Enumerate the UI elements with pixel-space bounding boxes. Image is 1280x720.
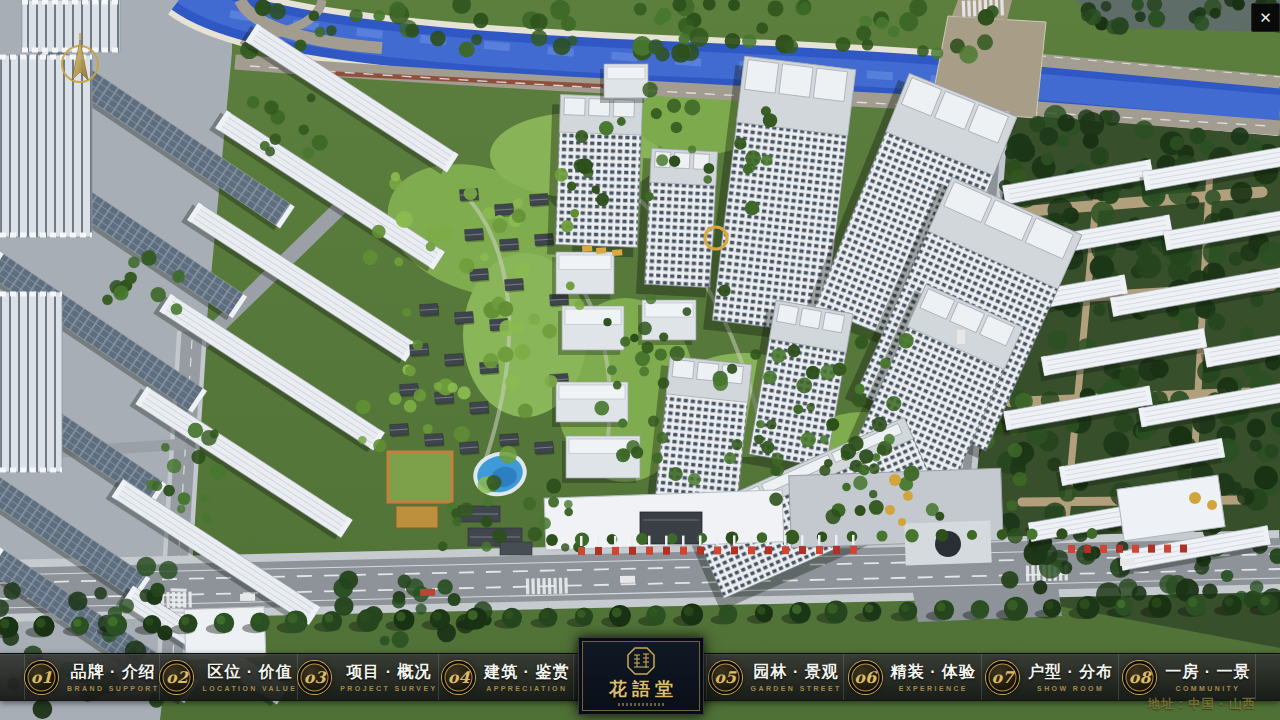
menu-title: 品牌 · 介绍 bbox=[71, 662, 156, 683]
close-icon: ✕ bbox=[1259, 10, 1272, 25]
menu-title: 精装 · 体验 bbox=[891, 662, 976, 683]
menu-subtitle: APPRECIATION bbox=[486, 685, 567, 692]
menu-subtitle: GARDEN STREET bbox=[751, 685, 842, 692]
menu-number-badge: o8 bbox=[1123, 661, 1156, 694]
close-button[interactable]: ✕ bbox=[1251, 3, 1280, 32]
menu-title: 一房 · 一景 bbox=[1165, 662, 1250, 683]
menu-subtitle: SHOW ROOM bbox=[1037, 685, 1104, 692]
menu-subtitle: EXPERIENCE bbox=[899, 685, 968, 692]
compass-icon bbox=[56, 32, 104, 92]
project-logo-panel[interactable]: 花語堂 bbox=[578, 637, 704, 715]
menu-title: 建筑 · 鉴赏 bbox=[484, 662, 569, 683]
menu-item-floorplan-distribution[interactable]: o7 户型 · 分布 SHOW ROOM bbox=[981, 654, 1118, 700]
masterplan-3d-view[interactable] bbox=[0, 0, 1280, 720]
hua-yu-tang-seal-icon bbox=[626, 646, 656, 676]
project-address: 地址：中国 · 山西 bbox=[1147, 696, 1256, 713]
menu-number-badge: o3 bbox=[298, 661, 331, 694]
menu-number-badge: o4 bbox=[442, 661, 475, 694]
menu-number-badge: o2 bbox=[160, 661, 193, 694]
menu-item-brand-intro[interactable]: o1 品牌 · 介绍 BRAND SUPPORT bbox=[24, 654, 159, 700]
menu-item-project-overview[interactable]: o3 项目 · 概况 PROJECT SURVEY bbox=[297, 654, 437, 700]
orange-wall-building bbox=[388, 452, 452, 502]
menu-item-garden-landscape[interactable]: o5 园林 · 景观 GARDEN STREET bbox=[706, 654, 843, 700]
menu-title: 园林 · 景观 bbox=[754, 662, 839, 683]
menu-number-badge: o7 bbox=[986, 661, 1019, 694]
menu-title: 项目 · 概况 bbox=[346, 662, 431, 683]
menu-subtitle: COMMUNITY bbox=[1175, 685, 1240, 692]
presentation-window: ✕ o1 品牌 · 介绍 BRAND SUPPORT o2 区位 · 价值 LO… bbox=[0, 0, 1280, 720]
menu-item-location-value[interactable]: o2 区位 · 价值 LOCATION VALUE bbox=[159, 654, 297, 700]
menu-number-badge: o6 bbox=[849, 661, 882, 694]
menu-subtitle: PROJECT SURVEY bbox=[340, 685, 437, 692]
menu-title: 户型 · 分布 bbox=[1028, 662, 1113, 683]
logo-tagline-rule bbox=[618, 703, 664, 706]
menu-number-badge: o1 bbox=[25, 661, 58, 694]
menu-number-badge: o5 bbox=[709, 661, 742, 694]
menu-title: 区位 · 价值 bbox=[207, 662, 292, 683]
project-logo-text: 花語堂 bbox=[604, 677, 678, 701]
menu-item-one-room-one-view[interactable]: o8 一房 · 一景 COMMUNITY bbox=[1118, 654, 1256, 700]
menu-subtitle: BRAND SUPPORT bbox=[67, 685, 159, 692]
menu-item-decor-experience[interactable]: o6 精装 · 体验 EXPERIENCE bbox=[843, 654, 980, 700]
menu-item-architecture-appreciation[interactable]: o4 建筑 · 鉴赏 APPRECIATION bbox=[438, 654, 574, 700]
menu-subtitle: LOCATION VALUE bbox=[202, 685, 297, 692]
